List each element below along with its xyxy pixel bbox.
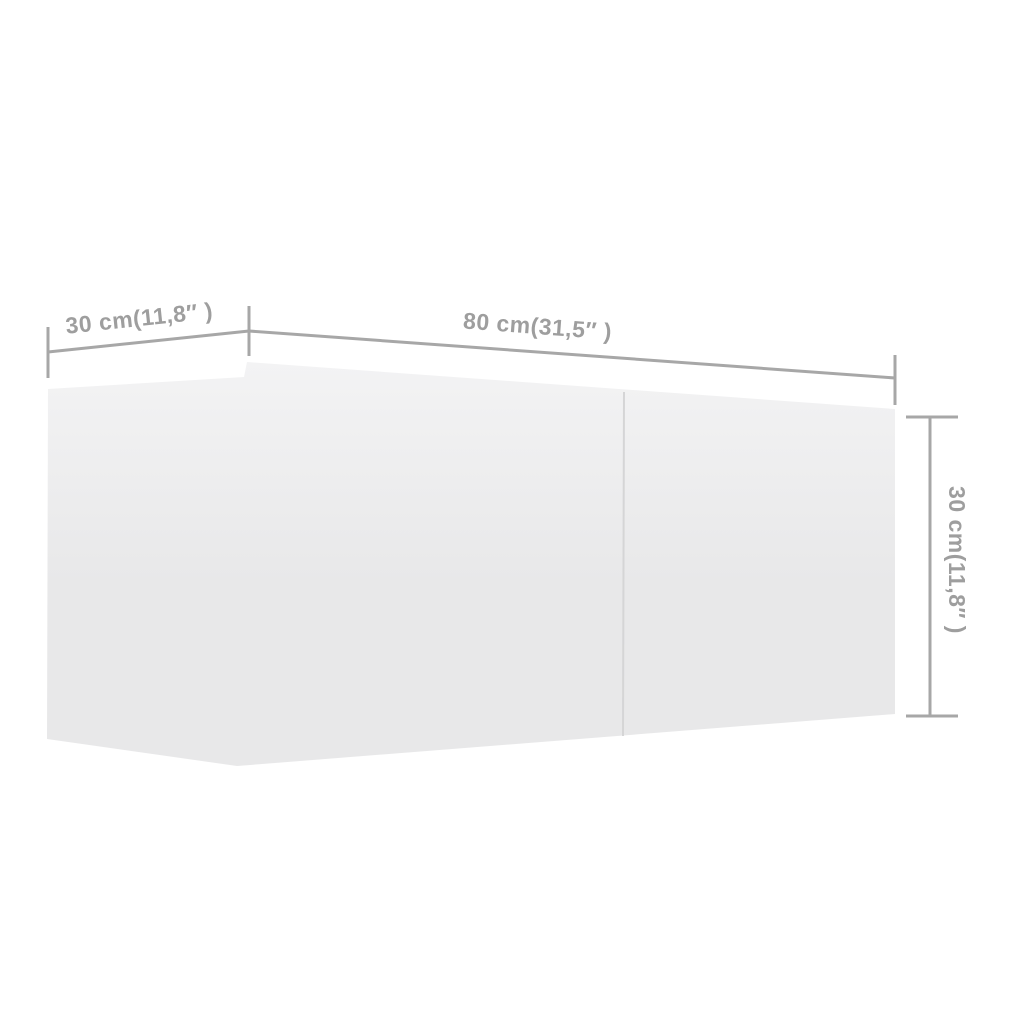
depth-dimension-label: 30 cm(11,8″ ) — [64, 297, 214, 338]
cabinet-door-divider-line — [623, 392, 624, 736]
cabinet-body — [47, 362, 895, 766]
height-dimension-label: 30 cm(11,8″ ) — [944, 486, 970, 634]
height-dimension: 30 cm(11,8″ ) — [906, 417, 970, 716]
depth-dimension: 30 cm(11,8″ ) — [48, 297, 249, 378]
product-dimension-diagram: 30 cm(11,8″ ) 80 cm(31,5″ ) 30 cm(11,8″ … — [0, 0, 1024, 1024]
dimension-diagram-canvas: 30 cm(11,8″ ) 80 cm(31,5″ ) 30 cm(11,8″ … — [0, 0, 1024, 1024]
width-dimension-label: 80 cm(31,5″ ) — [462, 307, 613, 344]
